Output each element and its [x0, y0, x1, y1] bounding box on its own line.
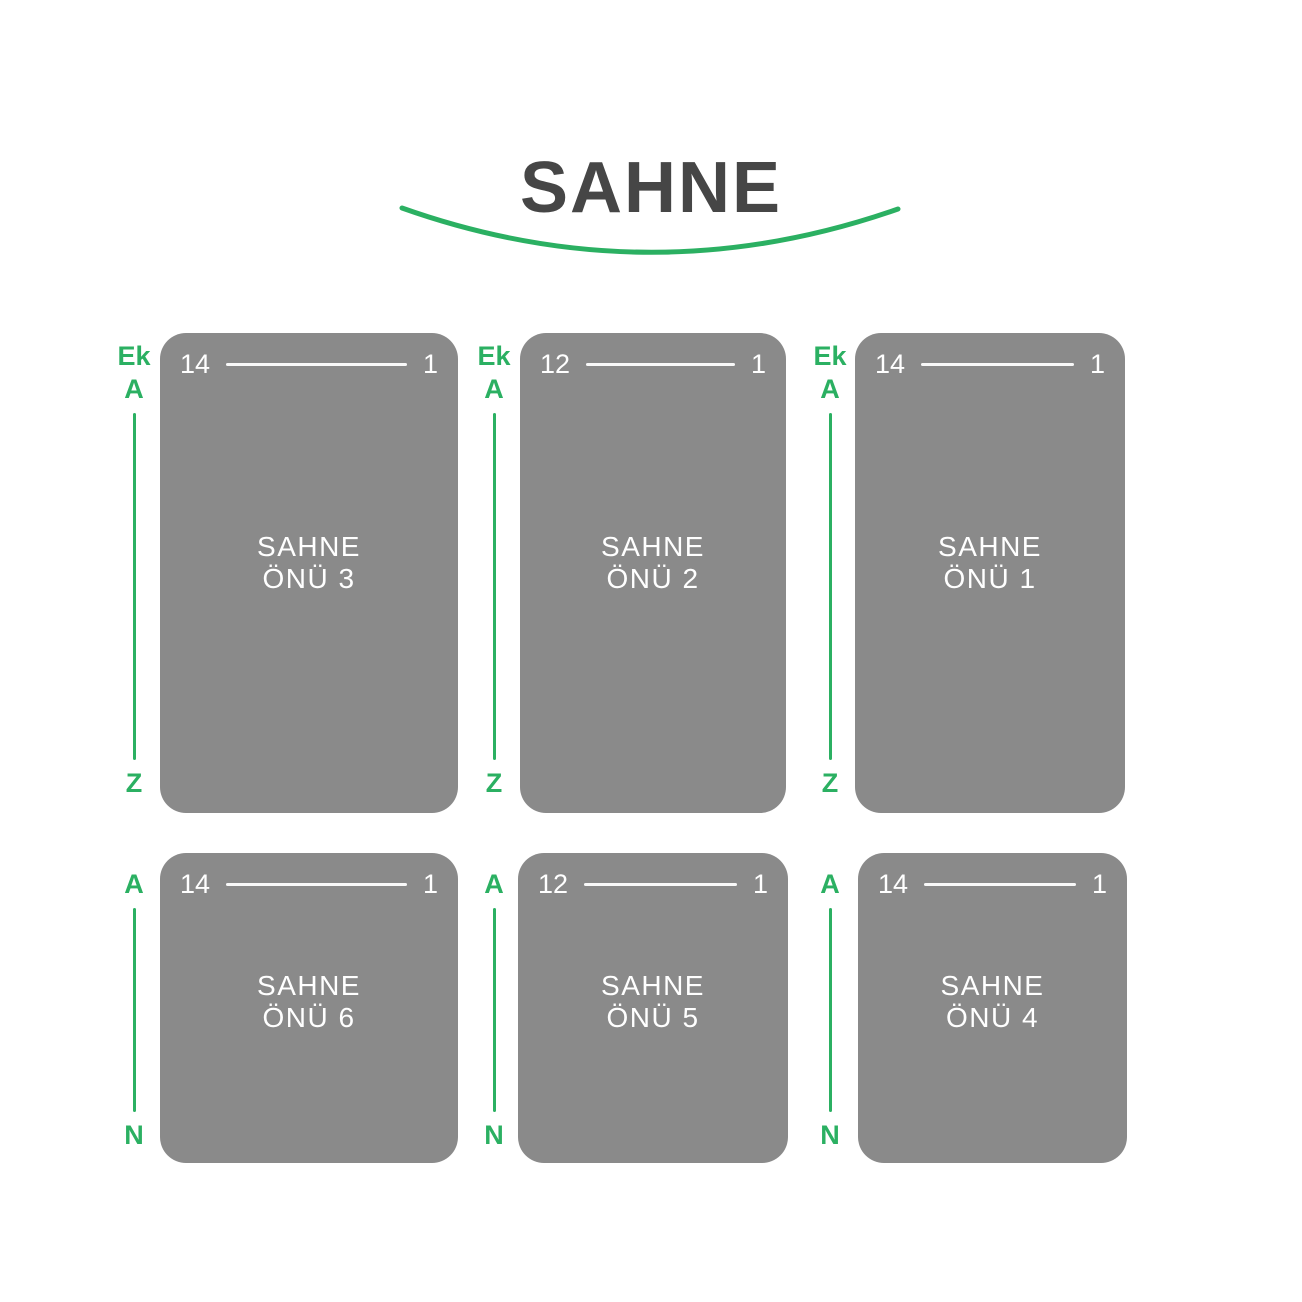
seat-number-left: 14	[878, 869, 908, 900]
block-name-line2: ÖNÜ 2	[520, 563, 786, 595]
seat-number-right: 1	[753, 869, 768, 900]
block-name-line2: ÖNÜ 6	[160, 1002, 458, 1034]
seat-range-line	[586, 363, 735, 366]
seat-range-line	[921, 363, 1074, 366]
seat-number-right: 1	[751, 349, 766, 380]
row-range-labels-onu-4: A N	[808, 868, 852, 1152]
block-name-line1: SAHNE	[855, 531, 1125, 563]
seat-number-range: 12 1	[518, 853, 788, 900]
row-label-first: A	[820, 868, 840, 901]
seating-map: SAHNE Ek A Z 14 1 SAHNE ÖNÜ 3 Ek A Z 12 …	[0, 0, 1302, 1302]
row-range-line	[829, 413, 832, 760]
row-range-labels-onu-3: Ek A Z	[112, 340, 156, 800]
block-name-line1: SAHNE	[160, 970, 458, 1002]
block-name: SAHNE ÖNÜ 3	[160, 531, 458, 595]
row-label-extra: Ek	[477, 340, 510, 373]
row-label-first: A	[484, 868, 504, 901]
row-range-line	[133, 908, 136, 1112]
row-label-last: N	[484, 1119, 504, 1152]
block-sahne-onu-6[interactable]: 14 1 SAHNE ÖNÜ 6	[160, 853, 458, 1163]
block-name: SAHNE ÖNÜ 5	[518, 970, 788, 1034]
seat-number-range: 14 1	[858, 853, 1127, 900]
seat-number-range: 14 1	[160, 333, 458, 380]
seat-range-line	[924, 883, 1076, 886]
block-name-line2: ÖNÜ 3	[160, 563, 458, 595]
seat-range-line	[226, 363, 407, 366]
row-label-extra: Ek	[813, 340, 846, 373]
block-sahne-onu-1[interactable]: 14 1 SAHNE ÖNÜ 1	[855, 333, 1125, 813]
seat-number-left: 14	[180, 349, 210, 380]
seat-number-left: 14	[180, 869, 210, 900]
block-name: SAHNE ÖNÜ 1	[855, 531, 1125, 595]
stage-title: SAHNE	[0, 147, 1302, 229]
row-range-labels-onu-2: Ek A Z	[472, 340, 516, 800]
block-sahne-onu-4[interactable]: 14 1 SAHNE ÖNÜ 4	[858, 853, 1127, 1163]
row-range-labels-onu-6: A N	[112, 868, 156, 1152]
row-label-last: Z	[822, 767, 839, 800]
block-name-line1: SAHNE	[160, 531, 458, 563]
seat-number-right: 1	[423, 869, 438, 900]
row-label-last: Z	[486, 767, 503, 800]
row-label-last: N	[124, 1119, 144, 1152]
block-name-line1: SAHNE	[858, 970, 1127, 1002]
block-name-line2: ÖNÜ 5	[518, 1002, 788, 1034]
row-label-extra: Ek	[117, 340, 150, 373]
row-range-line	[829, 908, 832, 1112]
block-name: SAHNE ÖNÜ 4	[858, 970, 1127, 1034]
seat-number-left: 12	[540, 349, 570, 380]
seat-range-line	[226, 883, 407, 886]
row-label-last: N	[820, 1119, 840, 1152]
block-name-line2: ÖNÜ 1	[855, 563, 1125, 595]
seat-number-right: 1	[1092, 869, 1107, 900]
row-range-labels-onu-5: A N	[472, 868, 516, 1152]
row-label-first: A	[484, 373, 504, 406]
block-sahne-onu-2[interactable]: 12 1 SAHNE ÖNÜ 2	[520, 333, 786, 813]
row-range-labels-onu-1: Ek A Z	[808, 340, 852, 800]
block-name-line1: SAHNE	[520, 531, 786, 563]
seat-number-left: 12	[538, 869, 568, 900]
row-range-line	[493, 413, 496, 760]
seat-number-range: 14 1	[855, 333, 1125, 380]
block-name-line1: SAHNE	[518, 970, 788, 1002]
block-sahne-onu-3[interactable]: 14 1 SAHNE ÖNÜ 3	[160, 333, 458, 813]
seat-number-range: 14 1	[160, 853, 458, 900]
seat-number-right: 1	[1090, 349, 1105, 380]
row-range-line	[493, 908, 496, 1112]
row-range-line	[133, 413, 136, 760]
seat-number-right: 1	[423, 349, 438, 380]
row-label-first: A	[124, 868, 144, 901]
row-label-first: A	[820, 373, 840, 406]
seat-number-range: 12 1	[520, 333, 786, 380]
block-sahne-onu-5[interactable]: 12 1 SAHNE ÖNÜ 5	[518, 853, 788, 1163]
block-name-line2: ÖNÜ 4	[858, 1002, 1127, 1034]
row-label-last: Z	[126, 767, 143, 800]
seat-range-line	[584, 883, 737, 886]
block-name: SAHNE ÖNÜ 2	[520, 531, 786, 595]
block-name: SAHNE ÖNÜ 6	[160, 970, 458, 1034]
seat-number-left: 14	[875, 349, 905, 380]
row-label-first: A	[124, 373, 144, 406]
